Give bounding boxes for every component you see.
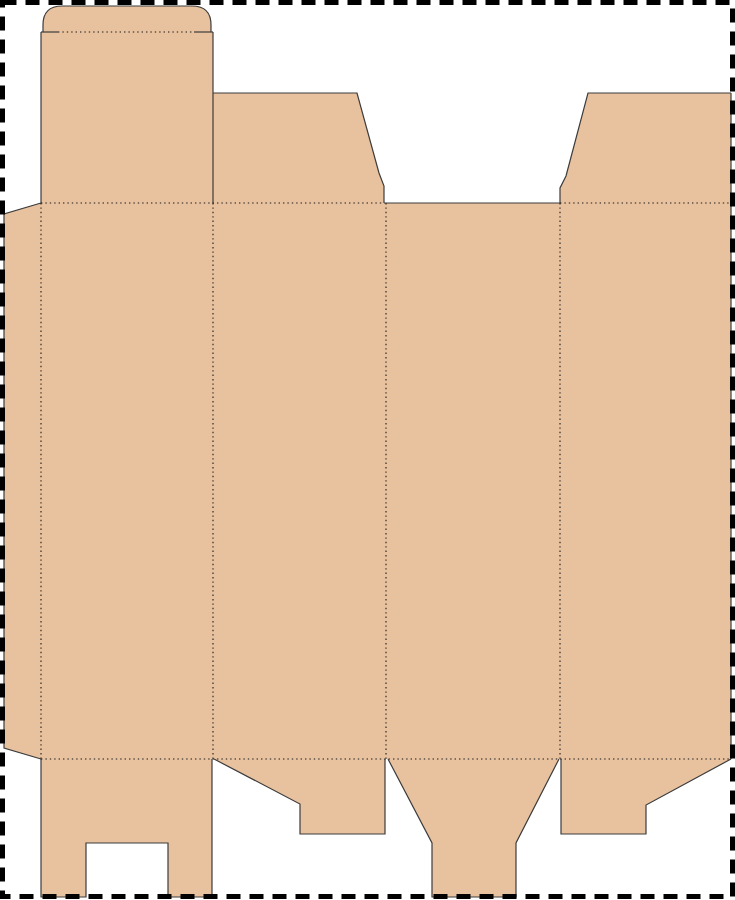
tuck-panel (41, 32, 213, 203)
dieline-canvas (0, 0, 735, 900)
tuck-flap (43, 6, 211, 32)
bottom-flap-1 (41, 759, 212, 897)
top-dust-flap-left (213, 93, 384, 203)
glue-tab (4, 203, 41, 759)
bottom-flap-3 (388, 759, 559, 897)
dieline-svg (0, 0, 735, 900)
top-dust-flap-right (560, 93, 731, 203)
